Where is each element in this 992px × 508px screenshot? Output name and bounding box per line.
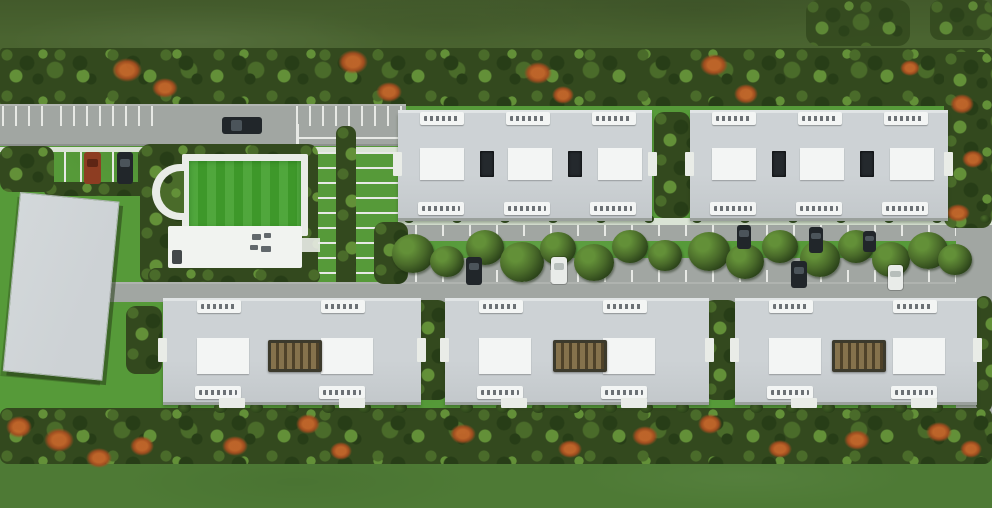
parking-stripes (60, 106, 160, 126)
rooftop-equipment (261, 246, 271, 252)
flowering-tree (44, 428, 74, 452)
apartment-building (735, 298, 977, 402)
roof-vent (480, 151, 494, 177)
building-entrance-tab (219, 398, 245, 408)
rooftop-unit (420, 148, 464, 180)
unit-label-plate (506, 112, 550, 125)
flowering-tree (926, 422, 952, 442)
flowering-tree (768, 440, 792, 458)
tree-clump (930, 0, 992, 40)
parked-car (551, 257, 567, 284)
roof-vent (860, 151, 874, 177)
flowering-tree (632, 426, 658, 446)
parked-car (84, 152, 101, 184)
flowering-tree (222, 436, 248, 456)
unit-label-plate (590, 202, 636, 215)
shrub (750, 402, 763, 413)
tree (612, 230, 648, 263)
flowering-tree (552, 86, 574, 104)
shrub (394, 402, 407, 413)
apartment-building (690, 110, 948, 218)
tree-clump (806, 0, 910, 46)
flowering-tree (734, 84, 758, 104)
rooftop-equipment (250, 245, 258, 250)
rooftop-unit (603, 338, 655, 374)
parking-stripes (2, 106, 44, 126)
apartment-building (398, 110, 652, 218)
building-entrance-tab (911, 398, 937, 408)
parking-stripes (296, 106, 404, 126)
building-entrance-tab (973, 338, 982, 362)
unit-label-plate (321, 300, 365, 313)
apartment-building (163, 298, 421, 402)
south-tree-line (0, 408, 992, 464)
flowering-tree (338, 50, 368, 74)
flowering-tree (130, 436, 154, 456)
flowering-tree (698, 414, 722, 434)
flowering-tree (330, 442, 352, 460)
flowering-tree (950, 94, 974, 114)
unit-label-plate (603, 300, 647, 313)
rooftop-unit (800, 148, 844, 180)
unit-label-plate (418, 202, 464, 215)
rooftop-unit (893, 338, 945, 374)
flowering-tree (6, 416, 32, 438)
building-entrance-tab (621, 398, 647, 408)
site-plan: Aerial master-plan rendering of a reside… (0, 0, 992, 508)
unit-label-plate (420, 112, 464, 125)
tree (688, 232, 730, 271)
unit-label-plate (796, 202, 842, 215)
apartment-building (445, 298, 709, 402)
parked-car (466, 257, 482, 285)
shrub (676, 402, 689, 413)
flowering-tree (900, 60, 920, 76)
clubhouse-entrance (172, 250, 182, 264)
tree-patch (0, 146, 54, 192)
building-entrance-tab (339, 398, 365, 408)
lawn-court (189, 161, 301, 229)
unit-label-plate (592, 112, 636, 125)
tree (938, 244, 972, 275)
shrub (250, 402, 263, 413)
tree (430, 246, 464, 277)
unit-label-plate (197, 300, 241, 313)
unit-label-plate (893, 300, 937, 313)
rooftop-unit (479, 338, 531, 374)
rooftop-equipment (264, 233, 271, 238)
flowering-tree (558, 440, 582, 458)
tree-patch (944, 52, 992, 228)
flowering-tree (844, 430, 870, 450)
parked-car (863, 231, 876, 252)
building-entrance-tab (501, 398, 527, 408)
shrub (568, 402, 581, 413)
unit-label-plate (769, 300, 813, 313)
clubhouse (168, 226, 302, 268)
flowering-tree (86, 448, 112, 468)
unit-label-plate (798, 112, 842, 125)
unit-label-plate (882, 202, 928, 215)
building-entrance-tab (685, 152, 694, 176)
rooftop-unit (508, 148, 552, 180)
parked-car (809, 227, 823, 253)
pergola (268, 340, 322, 372)
building-entrance-tab (705, 338, 714, 362)
flowering-tree (450, 424, 476, 444)
north-tree-line (0, 48, 992, 106)
flowering-tree (962, 150, 984, 168)
rooftop-unit (890, 148, 934, 180)
rooftop-unit (197, 338, 249, 374)
pergola (832, 340, 886, 372)
unit-label-plate (884, 112, 928, 125)
tree (392, 234, 434, 273)
rooftop-unit (321, 338, 373, 374)
building-entrance-tab (944, 152, 953, 176)
parked-car (222, 117, 262, 134)
shrub (980, 215, 990, 223)
building-entrance-tab (158, 338, 167, 362)
parked-car (888, 265, 903, 290)
flowering-tree (960, 440, 982, 458)
rooftop-unit (598, 148, 642, 180)
building-entrance-tab (440, 338, 449, 362)
shrub (858, 402, 871, 413)
building-entrance-tab (791, 398, 817, 408)
tree-patch (126, 306, 162, 374)
unit-label-plate (504, 202, 550, 215)
flowering-tree (946, 204, 970, 222)
tree (648, 240, 682, 271)
shrub (322, 402, 335, 413)
tree (726, 244, 764, 279)
unit-label-plate (479, 300, 523, 313)
flowering-tree (524, 62, 552, 84)
clubhouse-path (302, 238, 320, 252)
parked-car (791, 261, 807, 288)
tree (574, 244, 614, 281)
shrub (822, 402, 835, 413)
flowering-tree (296, 414, 320, 434)
shrub (286, 402, 299, 413)
parked-car (117, 152, 133, 184)
rooftop-equipment (252, 234, 261, 240)
parked-car (737, 225, 751, 249)
unit-label-plate (712, 112, 756, 125)
building-entrance-tab (648, 152, 657, 176)
roof-vent (772, 151, 786, 177)
flowering-tree (112, 58, 142, 82)
flowering-tree (152, 78, 178, 98)
service-building (3, 192, 120, 381)
shrub (460, 402, 473, 413)
shrub (178, 402, 191, 413)
shrub (894, 402, 907, 413)
unit-label-plate (710, 202, 756, 215)
rooftop-unit (769, 338, 821, 374)
tree (762, 230, 798, 263)
shrub (604, 402, 617, 413)
building-entrance-tab (417, 338, 426, 362)
pergola (553, 340, 607, 372)
parking-median-hedge (336, 126, 356, 302)
building-entrance-tab (393, 152, 402, 176)
building-entrance-tab (730, 338, 739, 362)
flowering-tree (376, 82, 402, 102)
rooftop-unit (712, 148, 756, 180)
flowering-tree (700, 54, 728, 76)
roof-vent (568, 151, 582, 177)
shrub (532, 402, 545, 413)
